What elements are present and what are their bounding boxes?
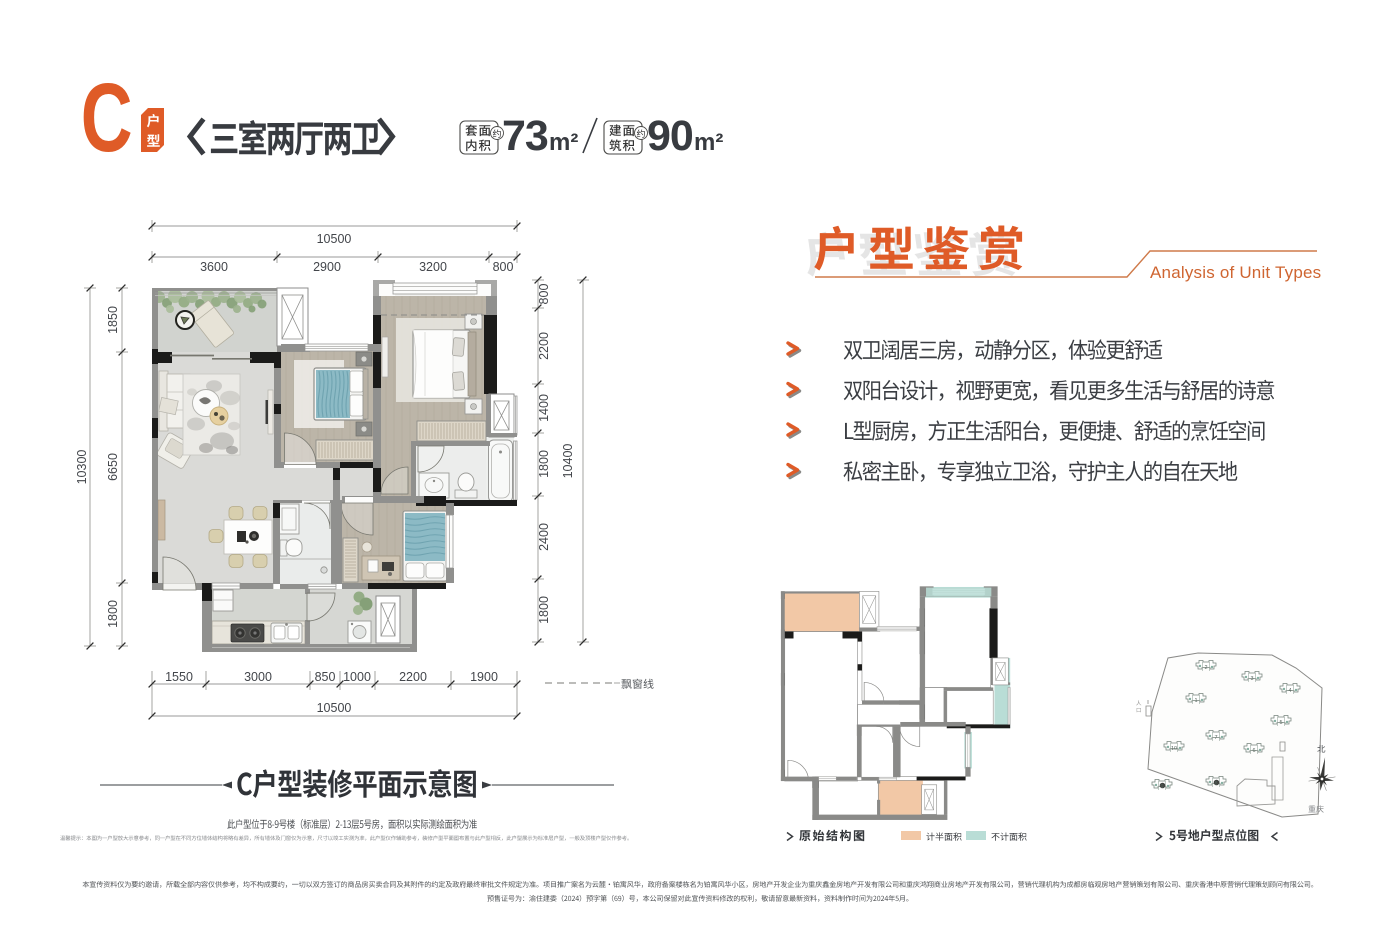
svg-text:5: 5 <box>1279 720 1282 726</box>
svg-text:2200: 2200 <box>399 670 427 684</box>
svg-text:3: 3 <box>1250 676 1253 682</box>
svg-text:6650: 6650 <box>106 453 120 481</box>
svg-text:1800: 1800 <box>106 600 120 628</box>
svg-text:8: 8 <box>1214 781 1217 787</box>
svg-text:3600: 3600 <box>200 260 228 274</box>
svg-text:2: 2 <box>1204 665 1207 671</box>
svg-text:850: 850 <box>315 670 336 684</box>
svg-text:10: 10 <box>1171 746 1177 752</box>
svg-text:90: 90 <box>647 112 693 160</box>
svg-text:10400: 10400 <box>561 444 575 479</box>
svg-text:800: 800 <box>537 284 551 305</box>
svg-text:1800: 1800 <box>537 596 551 624</box>
svg-text:2400: 2400 <box>537 523 551 551</box>
svg-text:7: 7 <box>1214 735 1217 741</box>
svg-text:800: 800 <box>493 260 514 274</box>
svg-text:C: C <box>81 65 133 173</box>
svg-text:3000: 3000 <box>244 670 272 684</box>
svg-text:1550: 1550 <box>165 670 193 684</box>
svg-text:1900: 1900 <box>470 670 498 684</box>
svg-text:1850: 1850 <box>106 306 120 334</box>
svg-text:10500: 10500 <box>317 232 352 246</box>
svg-text:4: 4 <box>1288 688 1291 694</box>
svg-text:6: 6 <box>1252 748 1255 754</box>
svg-text:1: 1 <box>1194 698 1197 704</box>
svg-text:1000: 1000 <box>343 670 371 684</box>
svg-text:10500: 10500 <box>317 701 352 715</box>
svg-text:m²: m² <box>549 129 578 156</box>
svg-text:10300: 10300 <box>75 450 89 485</box>
svg-text:Analysis of Unit Types: Analysis of Unit Types <box>1150 263 1321 282</box>
svg-text:3200: 3200 <box>419 260 447 274</box>
svg-text:9: 9 <box>1160 784 1163 790</box>
svg-text:2900: 2900 <box>313 260 341 274</box>
svg-text:m²: m² <box>694 129 723 156</box>
svg-text:2200: 2200 <box>537 332 551 360</box>
svg-text:1800: 1800 <box>537 450 551 478</box>
svg-text:1400: 1400 <box>537 394 551 422</box>
svg-text:73: 73 <box>502 112 548 160</box>
